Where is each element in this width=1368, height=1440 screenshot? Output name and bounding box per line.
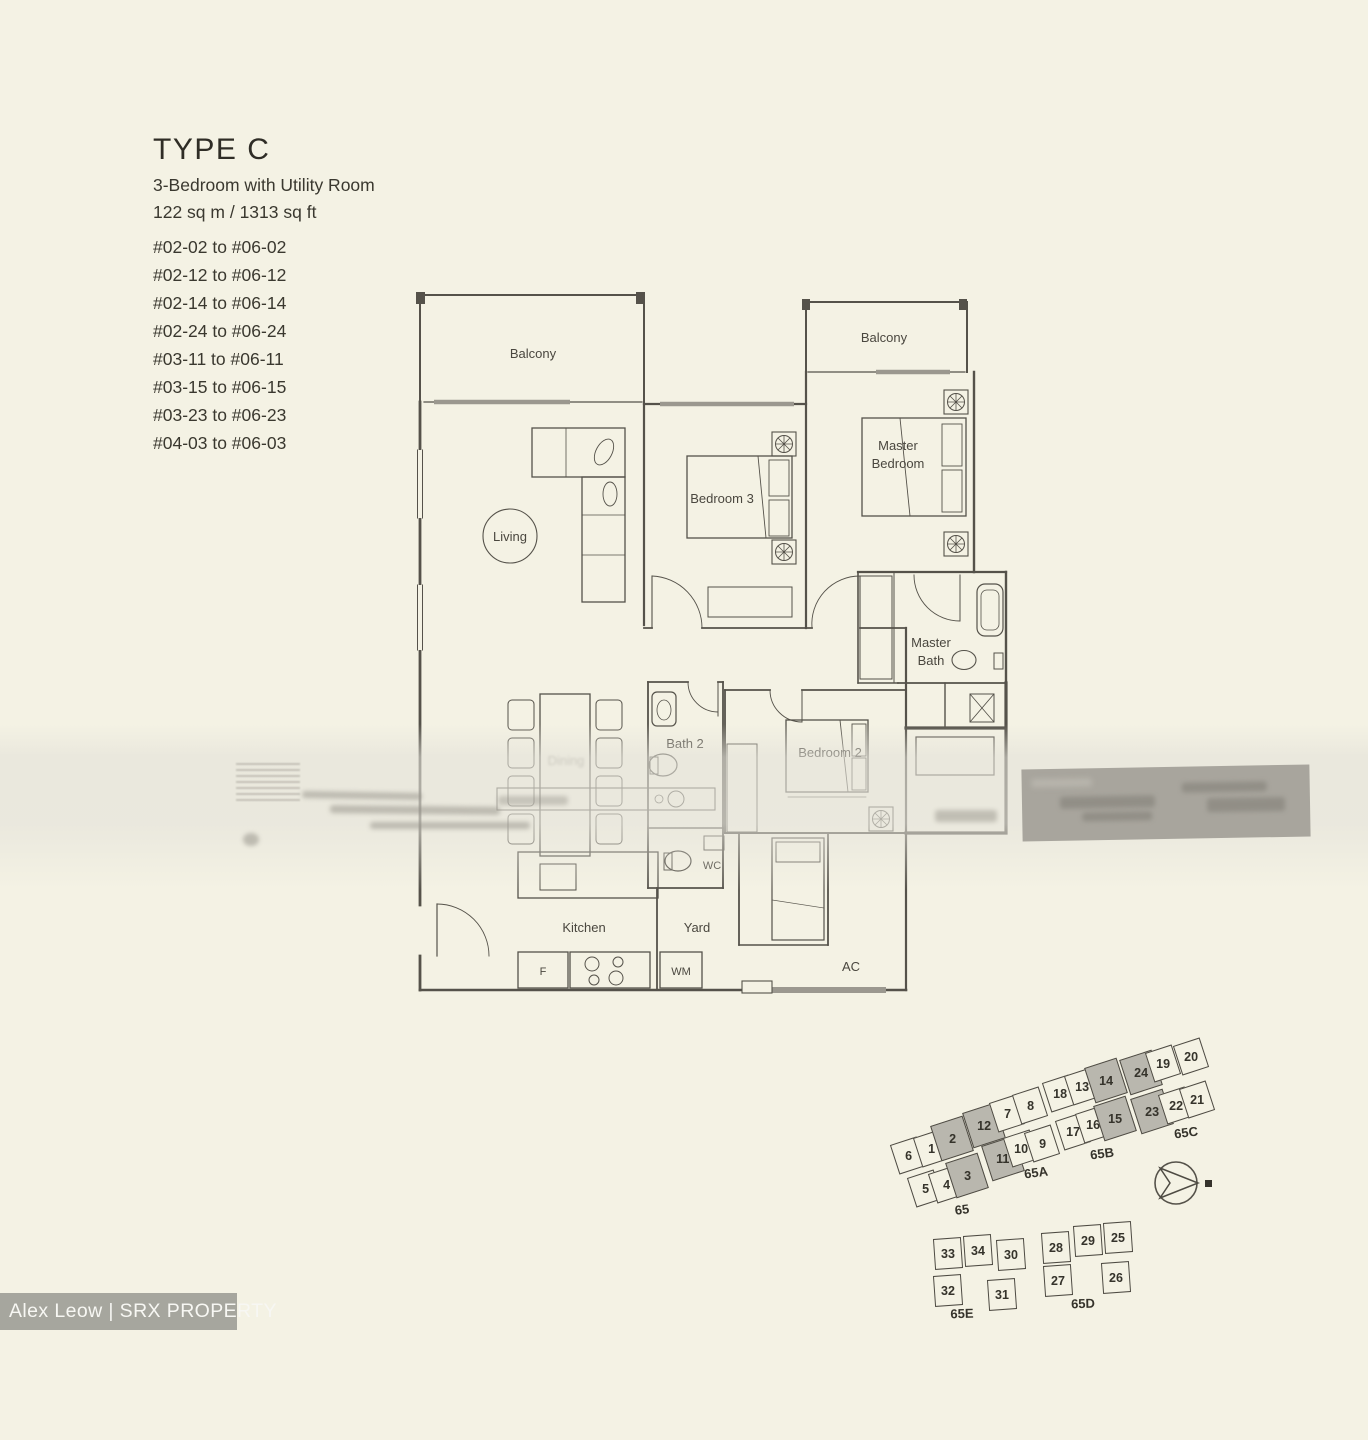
redacted-texture [1182,781,1267,792]
floorplan-page: TYPE C 3-Bedroom with Utility Room 122 s… [0,0,1368,1440]
washer-label: WM [671,966,691,978]
room-label-wc: WC [703,860,721,872]
siteplan-unit-number: 8 [1027,1098,1034,1112]
watermark-text: Alex Leow | SRX PROPERTY [9,1300,277,1322]
dining-area: Dining [508,694,622,856]
living-room: Living [483,404,806,625]
siteplan-unit-number: 1 [928,1141,935,1155]
blurred-text-smudge [935,810,997,822]
siteplan-unit-number: 30 [1004,1247,1018,1261]
siteplan-unit-28: 28 [1041,1231,1071,1264]
siteplan-unit-29: 29 [1073,1224,1103,1257]
siteplan-unit-number: 19 [1156,1056,1170,1070]
siteplan-unit-26: 26 [1101,1261,1131,1294]
siteplan-unit-number: 34 [971,1243,985,1257]
siteplan-unit-number: 23 [1145,1104,1159,1118]
siteplan-unit-number: 20 [1184,1049,1198,1063]
room-label-bedroom2: Bedroom 2 [798,745,862,760]
entrance-door [437,904,489,956]
redacted-texture [1060,795,1155,809]
fridge-label: F [540,966,547,978]
bedroom-2: Bedroom 2 [725,690,906,833]
room-label-master-bath-2: Bath [918,653,945,668]
siteplan-unit-32: 32 [933,1274,963,1307]
room-label-balcony-left: Balcony [510,346,557,361]
master-bedroom: Master Bedroom [806,372,974,628]
siteplan-unit-number: 14 [1099,1073,1113,1087]
siteplan-unit-number: 4 [943,1177,950,1191]
siteplan-unit-number: 21 [1190,1092,1204,1106]
room-label-dining: Dining [548,753,585,768]
siteplan-unit-number: 9 [1039,1136,1046,1150]
siteplan-unit-number: 29 [1081,1233,1095,1247]
siteplan-unit-34: 34 [963,1234,993,1267]
siteplan-unit-number: 27 [1051,1273,1065,1287]
redacted-texture [1207,797,1285,812]
floorplan-drawing: Balcony Living [0,0,1368,1440]
siteplan-unit-number: 31 [995,1287,1009,1301]
siteplan-unit-27: 27 [1043,1264,1073,1297]
siteplan-unit-number: 33 [941,1246,955,1260]
blurred-mark [243,833,259,846]
siteplan-unit-number: 10 [1014,1141,1028,1155]
redacted-texture [1032,778,1092,787]
siteplan-unit-number: 5 [922,1181,929,1195]
redacted-box [1021,764,1310,841]
siteplan-unit-25: 25 [1103,1221,1133,1254]
siteplan-unit-number: 22 [1169,1098,1183,1112]
siteplan-unit-number: 6 [905,1148,912,1162]
siteplan-unit-number: 28 [1049,1240,1063,1254]
room-label-master-bedroom: Master [878,438,918,453]
room-label-living: Living [493,529,527,544]
bath-2: Bath 2 [648,682,723,888]
wc: WC [664,836,724,872]
siteplan-unit-number: 12 [977,1118,991,1132]
north-arrow-icon [1148,1155,1224,1219]
balcony-right: Balcony [802,299,967,372]
siteplan-unit-number: 2 [949,1131,956,1145]
room-label-yard: Yard [684,920,711,935]
siteplan-unit-number: 24 [1134,1065,1148,1079]
room-label-kitchen: Kitchen [562,920,605,935]
siteplan-unit-number: 18 [1053,1086,1067,1100]
utility-room [739,833,828,945]
room-label-master-bath: Master [911,635,951,650]
siteplan-unit-33: 33 [933,1237,963,1270]
kitchen: F WM Kitchen Yard [497,788,715,990]
balcony-left: Balcony [416,292,645,402]
siteplan-unit-31: 31 [987,1278,1017,1311]
bedroom-3: Bedroom 3 [644,432,806,628]
siteplan-block-label-65E: 65E [940,1305,984,1321]
room-label-balcony-right: Balcony [861,330,908,345]
siteplan-unit-number: 13 [1075,1079,1089,1093]
siteplan-unit-30: 30 [996,1238,1026,1271]
corridor [806,576,906,628]
siteplan-block-label-65D: 65D [1061,1295,1105,1311]
room-label-bath2: Bath 2 [666,736,704,751]
siteplan-unit-number: 26 [1109,1270,1123,1284]
blurred-sketch-fragment [236,763,300,805]
room-label-master-bedroom-2: Bedroom [872,456,925,471]
siteplan-unit-number: 15 [1108,1111,1122,1125]
siteplan-unit-number: 32 [941,1283,955,1297]
siteplan-unit-number: 3 [964,1168,971,1182]
watermark-bar: Alex Leow | SRX PROPERTY [0,1293,237,1330]
outer-walls [415,402,906,990]
siteplan-unit-number: 25 [1111,1230,1125,1244]
blurred-text-smudge [498,796,568,805]
room-label-bedroom3: Bedroom 3 [690,491,754,506]
siteplan-unit-number: 7 [1004,1106,1011,1120]
blurred-text-smudge [370,822,530,829]
room-label-ac: AC [842,959,860,974]
redacted-texture [1082,811,1152,821]
